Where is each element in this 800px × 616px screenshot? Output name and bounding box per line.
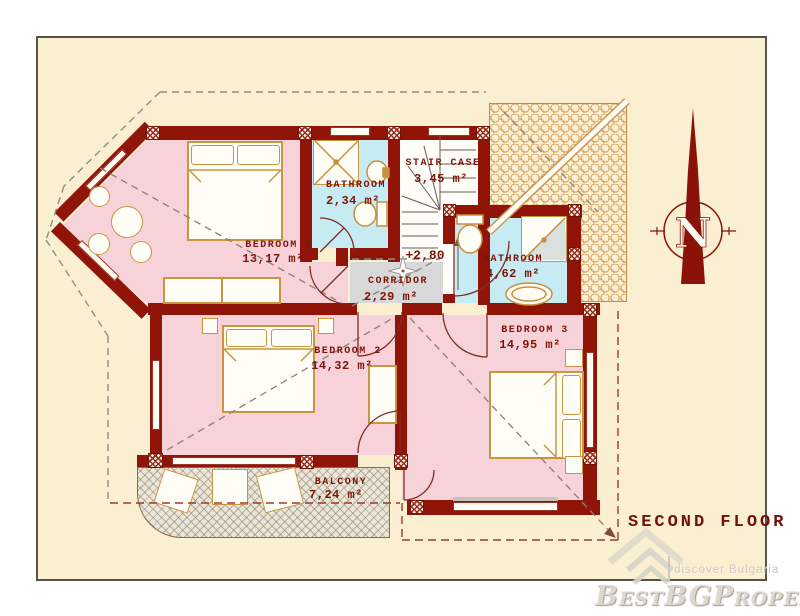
nightstand <box>565 456 583 474</box>
pier <box>583 303 597 317</box>
shower <box>313 140 359 185</box>
watermark-tagline: discover Bulgaria <box>674 564 779 576</box>
pillow <box>562 375 581 415</box>
chair <box>88 233 110 255</box>
chair <box>130 241 152 263</box>
pier <box>300 455 314 469</box>
label-staircase-area: 3,45 m² <box>414 172 468 186</box>
pier <box>410 500 424 514</box>
watermark-brand: BestBGProperties <box>595 581 800 612</box>
label-bedroom-2-area: 14,32 m² <box>311 359 373 373</box>
pier <box>476 126 490 140</box>
window <box>428 127 470 136</box>
window-sill <box>453 497 558 501</box>
balcony-table <box>212 469 248 505</box>
pier <box>387 126 401 140</box>
nightstand <box>202 318 218 334</box>
label-elevation: +2,80 <box>405 248 444 263</box>
pier <box>146 126 160 140</box>
pier <box>148 453 163 468</box>
wardrobe-divider <box>221 278 223 303</box>
wall <box>350 248 390 260</box>
label-bedroom-2-name: BEDROOM 2 <box>314 346 382 357</box>
watermark-separator <box>668 556 670 582</box>
label-corridor-name: CORRIDOR <box>368 276 428 287</box>
pier <box>298 126 312 140</box>
nightstand <box>565 349 583 367</box>
pier <box>583 451 597 465</box>
wall <box>388 140 400 262</box>
pillow <box>237 145 280 165</box>
window <box>586 352 594 448</box>
floorplan-canvas: N BEDROOM 1 13,17 m² BATHROOM 2,34 m² ST… <box>0 0 800 616</box>
wall <box>336 248 348 266</box>
sheet-title: SECOND FLOOR <box>628 513 786 532</box>
pier <box>443 204 456 217</box>
pillow <box>562 419 581 459</box>
pier <box>568 204 581 217</box>
pillow <box>271 329 312 347</box>
label-balcony-area: 7,24 m² <box>309 488 363 502</box>
pillow <box>226 329 267 347</box>
wall <box>402 303 442 315</box>
label-bathroom-2-area: 4,62 m² <box>486 267 540 281</box>
label-bathroom-1-name: BATHROOM <box>326 180 386 191</box>
pier <box>394 454 408 468</box>
chair <box>89 186 110 207</box>
wall <box>148 303 357 315</box>
label-bedroom-1-area: 13,17 m² <box>242 252 304 266</box>
round-table <box>111 206 143 238</box>
label-bathroom-1-area: 2,34 m² <box>326 194 380 208</box>
window <box>172 457 296 465</box>
label-staircase-name: STAIR CASE <box>405 158 480 169</box>
label-bedroom-3-name: BEDROOM 3 <box>501 325 569 336</box>
wall <box>443 218 455 244</box>
wall <box>443 294 455 303</box>
window <box>330 127 370 136</box>
pier <box>568 247 581 261</box>
label-bedroom-1-name: BEDROOM 1 <box>245 240 313 251</box>
window <box>152 360 160 430</box>
nightstand <box>318 318 334 334</box>
label-bedroom-3-area: 14,95 m² <box>499 338 561 352</box>
label-bathroom-2-name: BATHROOM <box>483 254 543 265</box>
window <box>453 502 558 511</box>
pillow <box>191 145 234 165</box>
wardrobe <box>368 365 397 424</box>
label-balcony-name: BALCONY <box>315 477 368 488</box>
label-corridor-area: 2,29 m² <box>364 290 418 304</box>
